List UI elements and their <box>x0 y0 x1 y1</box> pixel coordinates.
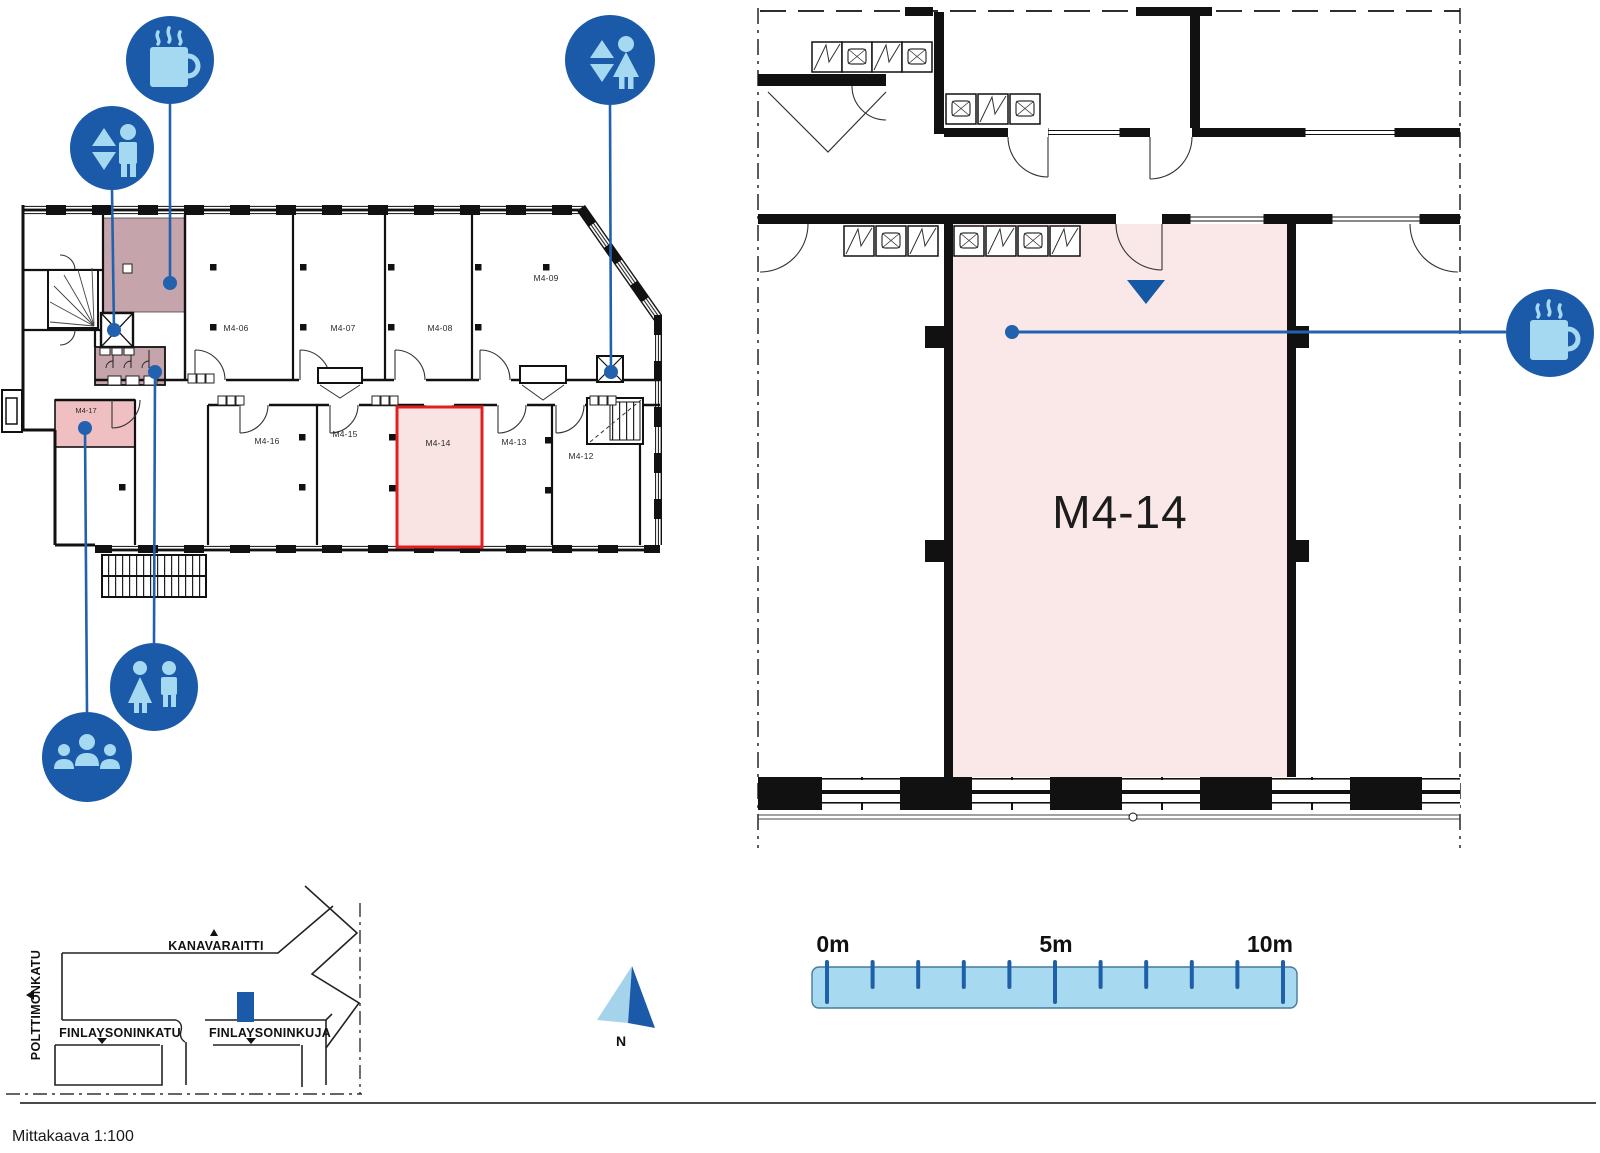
room-label-m4-17: M4-17 <box>75 406 96 415</box>
scale-caption: Mittakaava 1:100 <box>12 1128 134 1146</box>
room-label-m4-15: M4-15 <box>332 429 357 439</box>
scale-label-10m: 10m <box>1247 931 1293 957</box>
compass: N <box>575 935 665 1050</box>
coffee-station-icon <box>1506 289 1594 377</box>
street-outlines <box>55 886 359 1087</box>
elevator-icon <box>565 15 655 105</box>
room-label-m4-12: M4-12 <box>568 451 593 461</box>
room-label-m4-08: M4-08 <box>427 323 452 333</box>
left-annex <box>2 390 22 432</box>
stairwell-radial <box>48 268 98 328</box>
entry-vestibules <box>318 366 566 400</box>
detail-floor-plan: M4-14 <box>700 0 1600 870</box>
room-label-m4-14: M4-14 <box>425 438 450 448</box>
floor-plan-sheet: M4-06 M4-07 M4-08 M4-09 M4-16 M4-15 M4-1… <box>0 0 1600 1153</box>
coffee-station-icon <box>126 16 214 104</box>
site-map: KANAVARAITTI POLTTIMONKATU FINLAYSONINKA… <box>0 880 400 1110</box>
street-label-finlaysoninkuja: FINLAYSONINKUJA <box>209 1026 331 1040</box>
street-label-kanavaraitti: KANAVARAITTI <box>168 939 264 953</box>
site-boundary-lines <box>6 903 362 1094</box>
street-label-polttimonkatu: POLTTIMONKATU <box>29 950 43 1060</box>
street-label-finlaysoninkatu: FINLAYSONINKATU <box>59 1026 181 1040</box>
scale-bar: 0m 5m 10m <box>790 920 1310 1020</box>
detail-room-label: M4-14 <box>1052 486 1187 538</box>
overview-floor-plan: M4-06 M4-07 M4-08 M4-09 M4-16 M4-15 M4-1… <box>0 0 700 820</box>
wc-icon <box>110 643 198 731</box>
highlighted-room-m4-14 <box>397 407 482 547</box>
footer-divider <box>20 1102 1596 1104</box>
compass-north-label: N <box>616 1033 626 1049</box>
amenity-anchor-dot <box>1005 325 1019 339</box>
detail-facade <box>758 777 1460 821</box>
room-label-m4-16: M4-16 <box>254 436 279 446</box>
room-label-m4-06: M4-06 <box>223 323 248 333</box>
meeting-point-icon <box>42 712 132 802</box>
room-label-m4-07: M4-07 <box>330 323 355 333</box>
compass-needle-dark <box>628 966 655 1028</box>
compass-needle-light <box>597 966 632 1023</box>
building-location-marker <box>237 992 254 1022</box>
detail-wall-openings <box>1008 128 1420 224</box>
scale-label-0m: 0m <box>816 931 849 957</box>
elevator-icon <box>70 106 154 190</box>
scale-label-5m: 5m <box>1039 931 1072 957</box>
room-label-m4-13: M4-13 <box>501 437 526 447</box>
room-label-m4-09: M4-09 <box>533 273 558 283</box>
